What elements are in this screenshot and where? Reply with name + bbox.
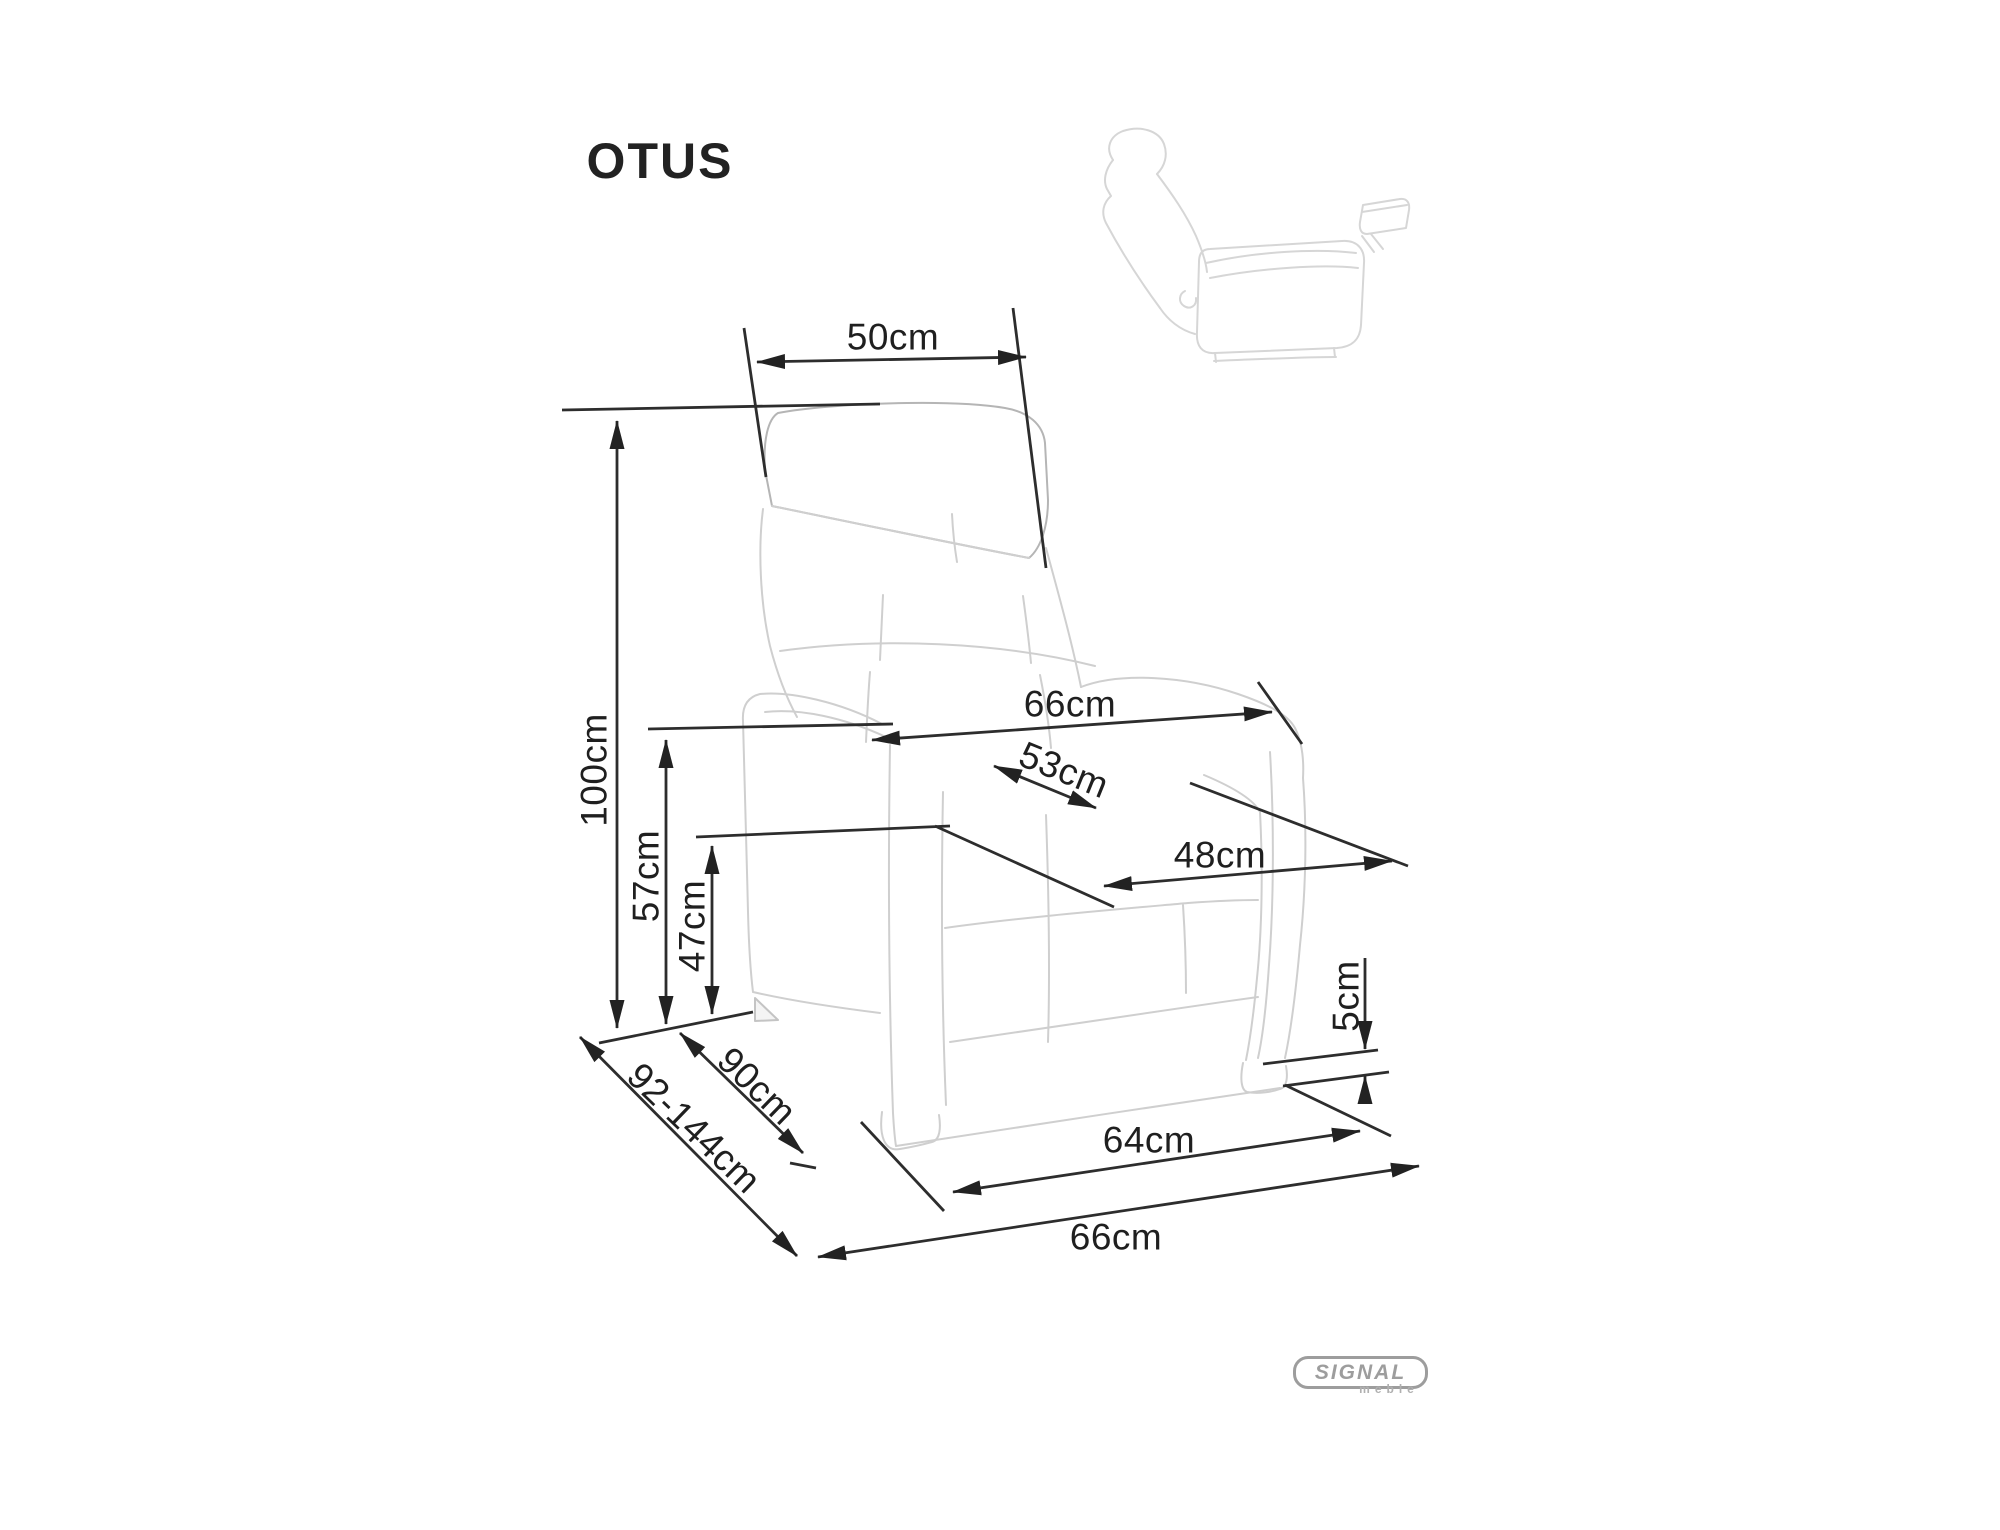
dim-label-66cm-upper: 66cm	[1024, 686, 1116, 723]
ext-line	[1263, 1050, 1378, 1064]
right-armrest-seam	[1258, 752, 1273, 1058]
side-body	[1197, 241, 1364, 353]
dim-label-64cm: 64cm	[1103, 1122, 1195, 1159]
dim-label-57cm: 57cm	[628, 830, 665, 922]
dimension-diagram: OTUS 50cm 100cm 66cm 53cm 48cm 57cm 47cm…	[0, 0, 2000, 1530]
rear-left-foot	[755, 998, 778, 1021]
dim-57cm	[648, 724, 893, 1024]
dim-53cm	[935, 766, 1408, 907]
dim-label-66cm-lower: 66cm	[1070, 1219, 1162, 1256]
ext-line	[935, 826, 1114, 907]
chair-side-sketch	[1103, 129, 1409, 362]
seat-right-seam	[1183, 905, 1186, 993]
page-title: OTUS	[587, 132, 734, 190]
side-headrest	[1109, 129, 1166, 174]
left-armrest-roll	[743, 694, 882, 992]
side-handle	[1180, 291, 1196, 308]
dim-47cm	[696, 826, 950, 1014]
dim-label-5cm: 5cm	[1328, 960, 1365, 1031]
side-backrest-back	[1103, 160, 1160, 308]
seat-horizontal-seam	[945, 900, 1258, 928]
side-footrest	[1360, 199, 1409, 234]
ext-line	[1285, 1085, 1391, 1136]
side-backrest-bottom	[1160, 308, 1195, 334]
side-seat-lines	[1206, 251, 1358, 278]
backrest-band-seam	[780, 643, 1095, 666]
front-rail-top	[950, 997, 1258, 1042]
dim-label-50cm: 50cm	[847, 319, 939, 356]
right-armrest-inner	[1204, 775, 1262, 1060]
headrest-seam	[772, 506, 1029, 562]
ext-line	[861, 1122, 944, 1211]
dim-label-100cm: 100cm	[576, 713, 613, 827]
dim-label-48cm: 48cm	[1174, 837, 1266, 874]
signal-logo-subtext: meble	[1359, 1382, 1419, 1396]
headrest-outline	[765, 403, 1048, 558]
side-footrest-links	[1362, 234, 1383, 252]
ext-line	[1283, 1072, 1389, 1086]
backrest-right-edge	[1046, 548, 1081, 687]
ext-line	[648, 724, 893, 729]
seat-left-edge	[942, 792, 946, 1105]
front-rail-left	[893, 1113, 896, 1146]
left-armrest-bottom	[753, 992, 880, 1013]
front-rail-bottom	[896, 1088, 1280, 1146]
backrest-left-edge	[760, 509, 797, 717]
arrow-line	[757, 357, 1026, 362]
signal-logo-text: SIGNAL	[1315, 1361, 1406, 1385]
ext-line	[790, 1163, 816, 1168]
ext-line	[599, 1012, 753, 1043]
ext-line	[696, 826, 950, 837]
sketch-layer	[0, 0, 2000, 1530]
dim-label-47cm: 47cm	[674, 880, 711, 972]
ext-line	[744, 328, 766, 477]
seat-center-seam	[1046, 815, 1049, 1042]
left-inner-edge	[889, 745, 893, 1113]
ext-line	[1013, 308, 1046, 568]
backrest-tuft-seams	[866, 595, 1051, 748]
front-right-foot	[1241, 1063, 1287, 1093]
